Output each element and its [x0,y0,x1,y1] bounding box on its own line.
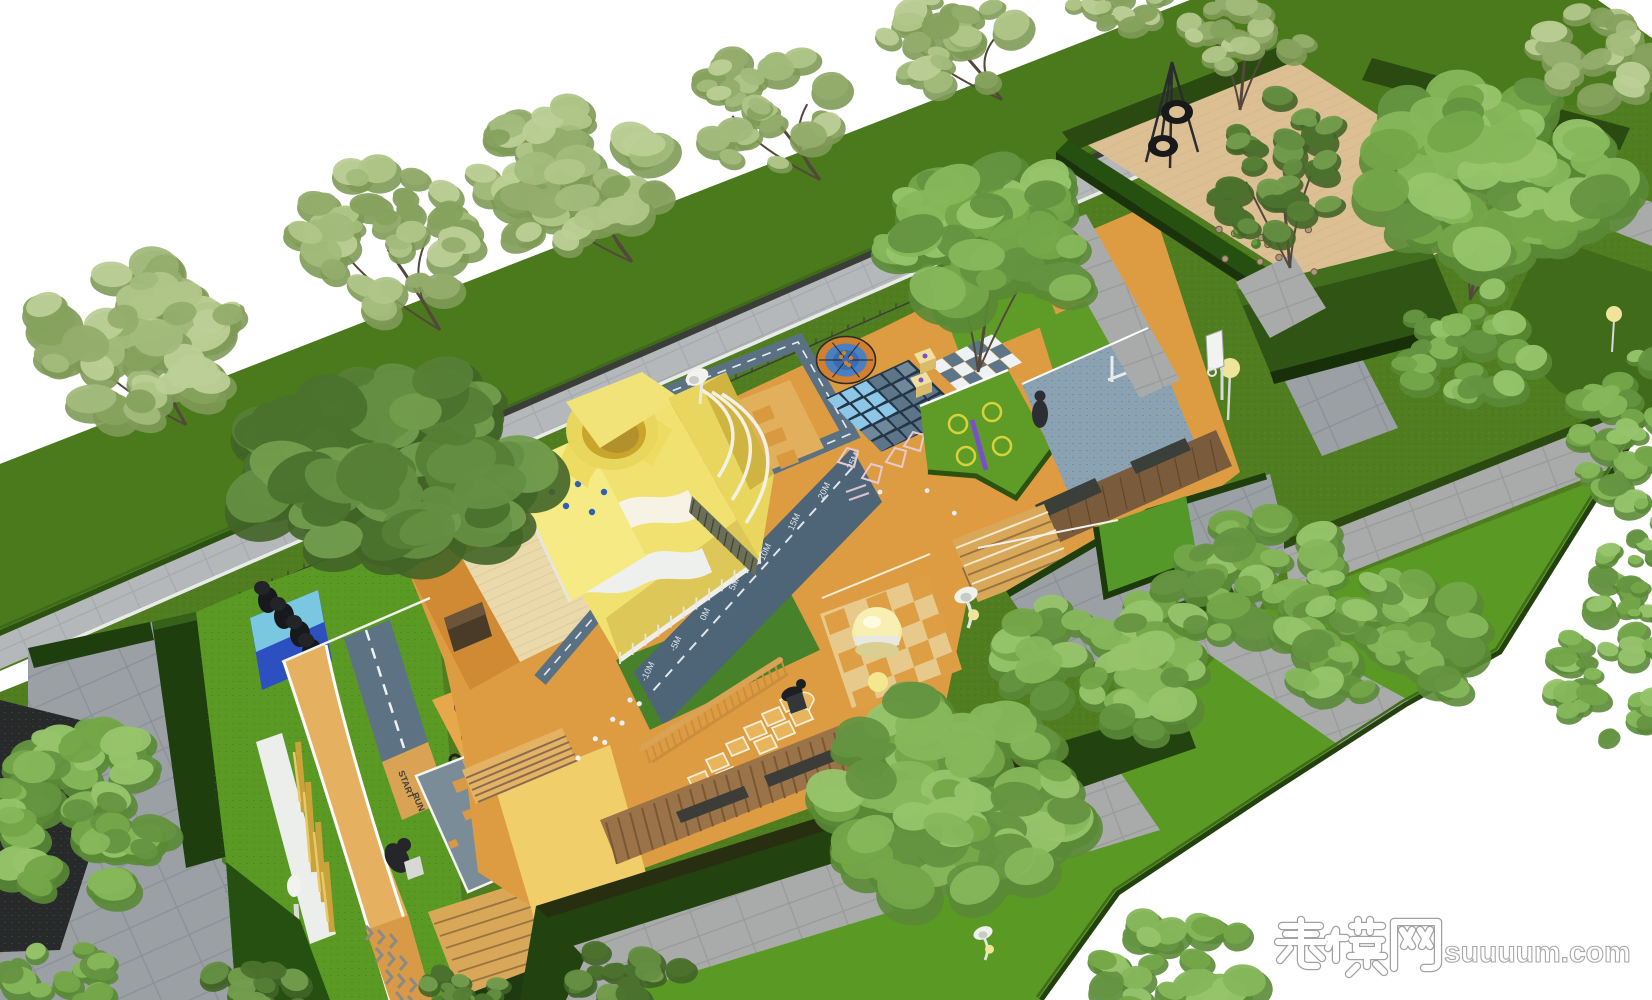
svg-text:suuuum.com: suuuum.com [1444,936,1631,969]
